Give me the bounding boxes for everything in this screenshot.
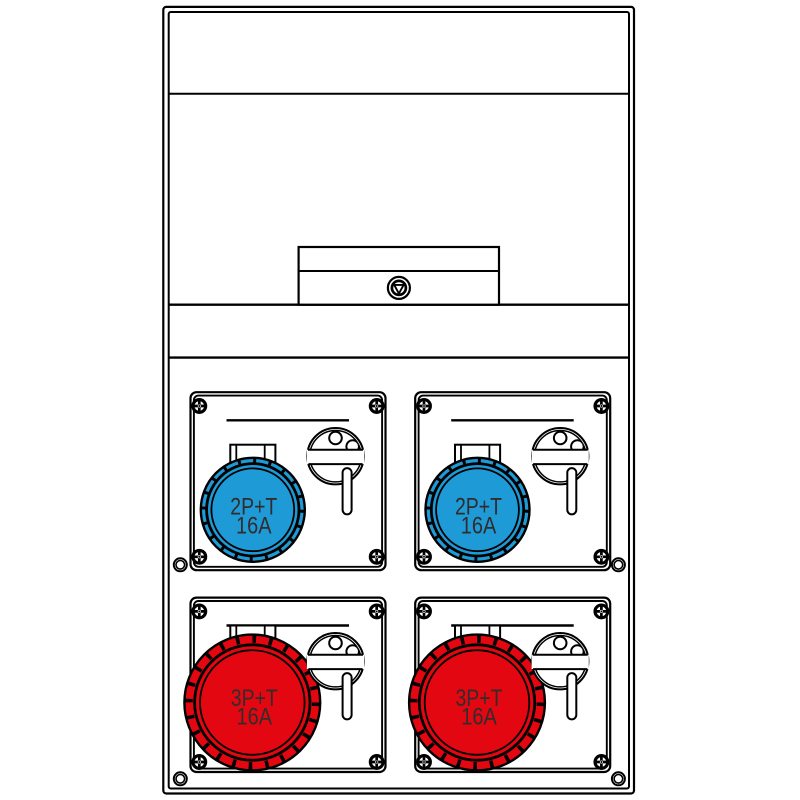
svg-text:16A: 16A: [461, 512, 497, 539]
svg-text:16A: 16A: [237, 703, 273, 730]
svg-text:16A: 16A: [461, 703, 497, 730]
svg-text:16A: 16A: [236, 512, 272, 539]
